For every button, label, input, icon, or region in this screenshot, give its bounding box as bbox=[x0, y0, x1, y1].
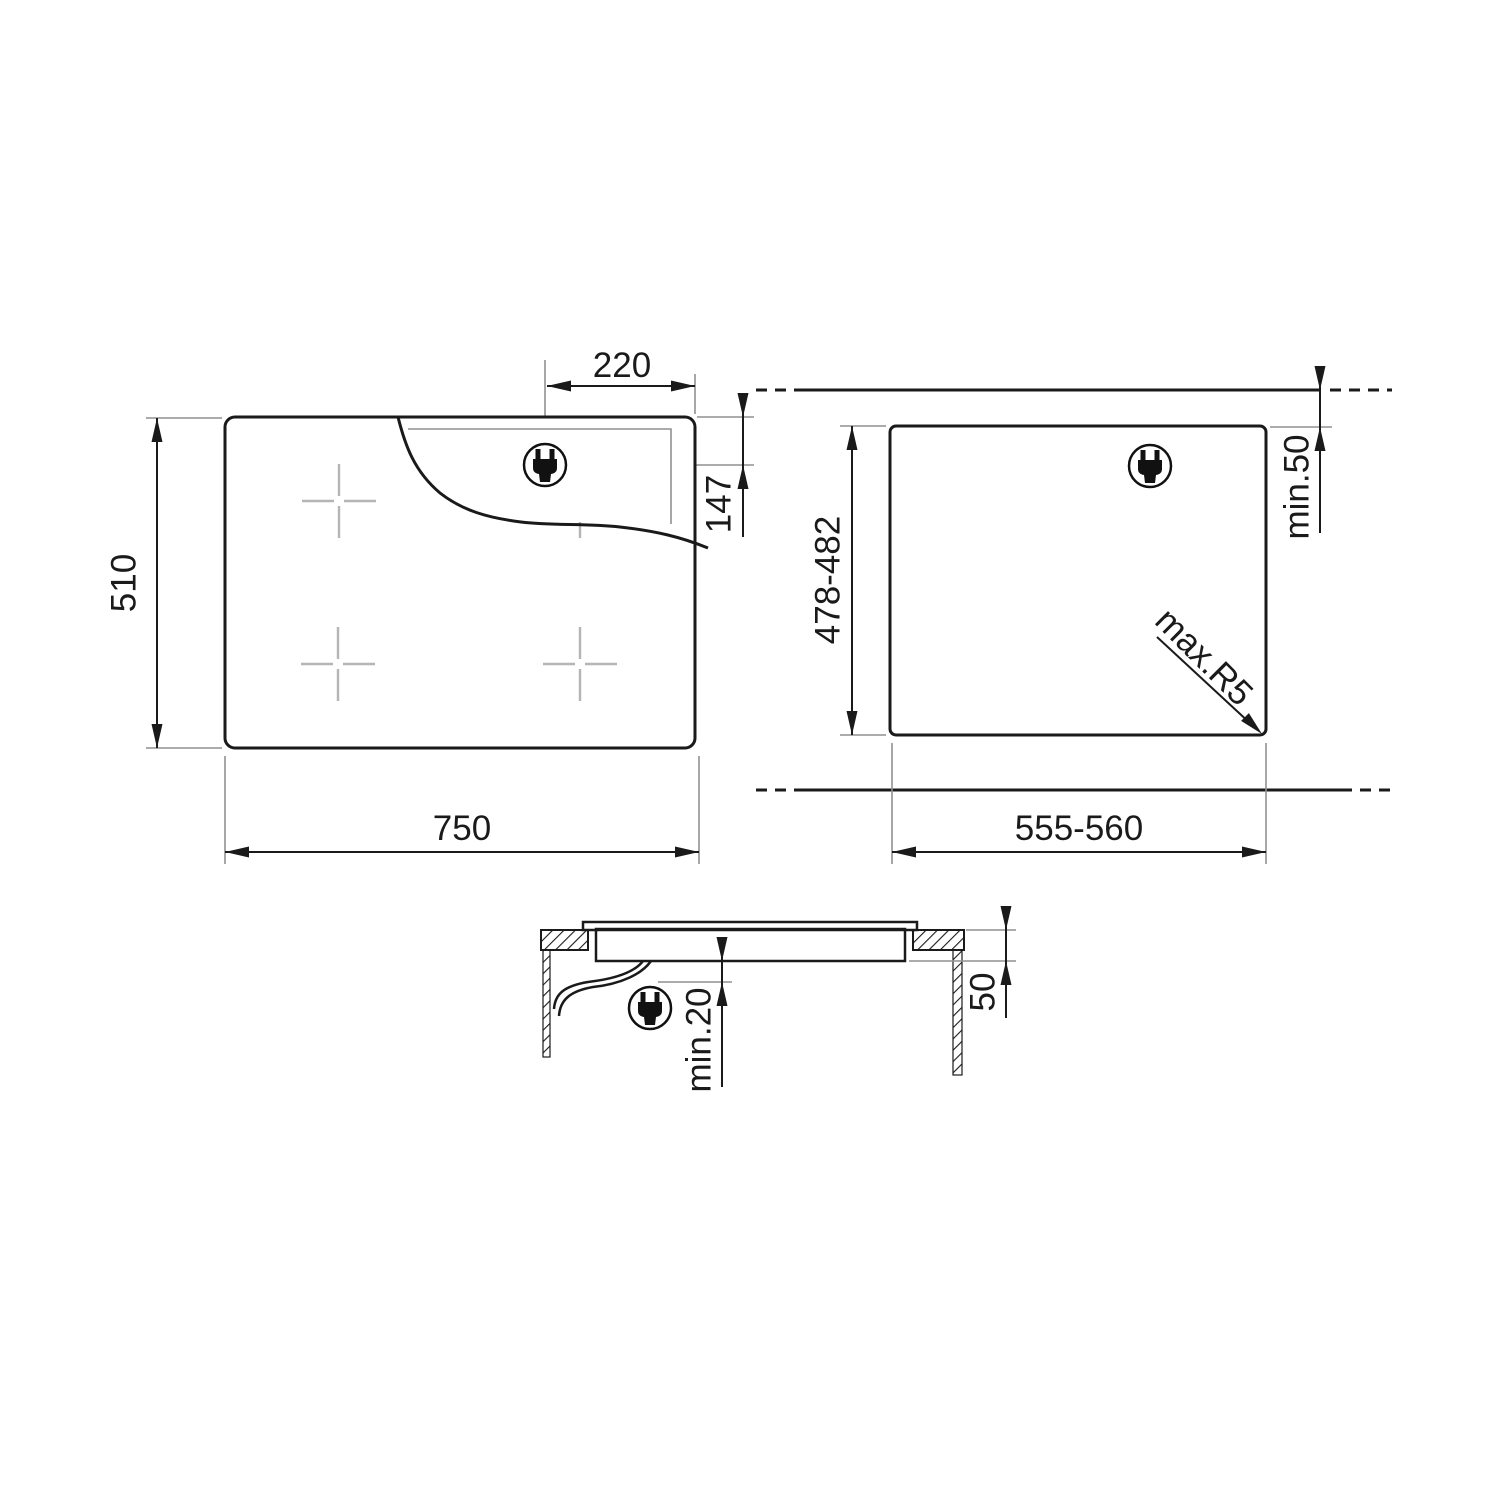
dim-label-147: 147 bbox=[700, 475, 739, 533]
worktop-cutout-view: 478-482 min.50 max.R5 555-560 bbox=[756, 366, 1392, 864]
diagram-canvas: 220 147 510 750 bbox=[0, 0, 1500, 1500]
hob-top-view: 220 147 510 750 bbox=[105, 346, 755, 864]
power-plug-icon bbox=[1129, 445, 1171, 487]
hob-installation-diagram: 220 147 510 750 bbox=[0, 0, 1500, 1500]
hob-glass-section bbox=[583, 922, 917, 930]
hob-body-section bbox=[596, 929, 905, 961]
dim-label-220: 220 bbox=[593, 346, 651, 385]
dim-label-478-482: 478-482 bbox=[809, 516, 848, 644]
power-plug-icon bbox=[629, 987, 671, 1029]
worktop-section-left bbox=[541, 930, 588, 950]
dim-label-555-560: 555-560 bbox=[1015, 809, 1143, 848]
cabinet-panel-left bbox=[543, 950, 550, 1057]
dim-label-510: 510 bbox=[105, 554, 144, 612]
dim-label-min50: min.50 bbox=[1278, 434, 1317, 539]
dim-cutout-depth: 478-482 bbox=[809, 426, 858, 735]
power-plug-icon bbox=[524, 444, 566, 486]
dim-cutout-width: 555-560 bbox=[892, 809, 1266, 858]
installation-section-view: min.20 50 bbox=[541, 906, 1016, 1093]
hob-outline bbox=[225, 417, 695, 748]
dim-label-50: 50 bbox=[964, 973, 1003, 1012]
dim-plug-from-right: 220 bbox=[547, 346, 695, 392]
dim-hob-depth: 510 bbox=[105, 418, 163, 748]
cabinet-panel-right bbox=[953, 950, 962, 1075]
dim-hob-width: 750 bbox=[225, 809, 699, 858]
dim-label-750: 750 bbox=[433, 809, 491, 848]
dim-label-min20: min.20 bbox=[680, 987, 719, 1092]
worktop-section-right bbox=[913, 930, 964, 950]
dim-rear-clearance: min.50 bbox=[1278, 366, 1326, 540]
